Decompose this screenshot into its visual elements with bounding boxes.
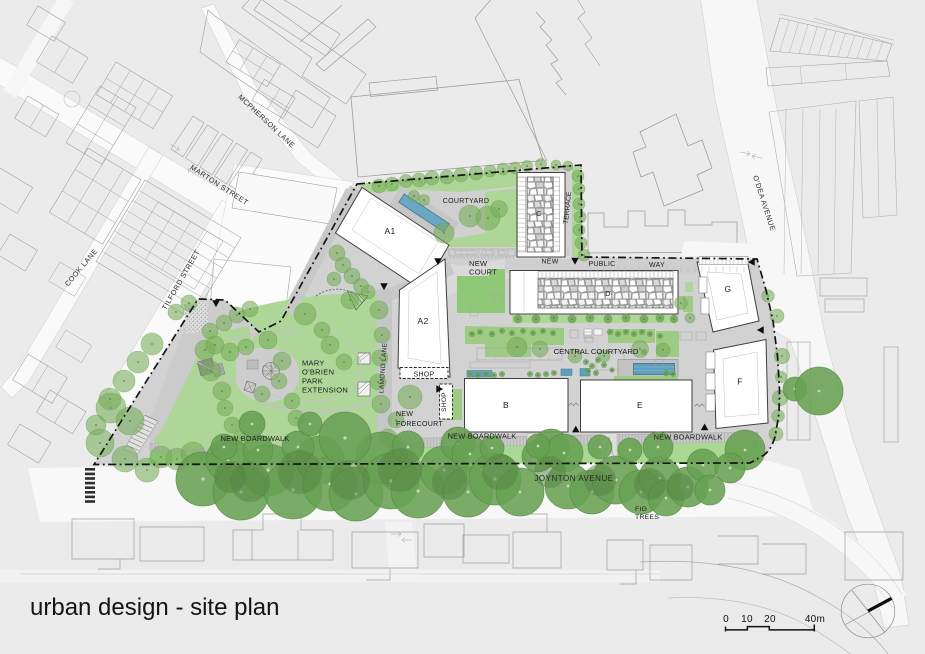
svg-text:FIG: FIG [635,506,647,513]
svg-text:EXTENSION: EXTENSION [302,385,348,394]
svg-text:C: C [536,209,542,218]
svg-text:WAY: WAY [649,262,665,269]
svg-text:E: E [637,400,643,410]
svg-text:A2: A2 [418,316,429,326]
svg-text:F: F [737,377,743,387]
svg-text:PUBLIC: PUBLIC [588,261,615,268]
svg-text:PARK: PARK [302,377,323,386]
svg-text:NEW BOARDWALK: NEW BOARDWALK [654,433,723,442]
svg-text:A1: A1 [385,226,396,236]
svg-text:JOYNTON AVENUE: JOYNTON AVENUE [534,474,613,483]
svg-text:NEW: NEW [396,411,413,418]
svg-text:NEW BOARDWALK: NEW BOARDWALK [448,432,517,441]
svg-text:40m: 40m [805,614,825,625]
svg-text:20: 20 [764,614,776,625]
svg-text:D: D [605,289,611,298]
svg-text:O'BRIEN: O'BRIEN [302,368,334,377]
svg-text:COURTYARD: COURTYARD [443,198,489,205]
svg-text:TREES: TREES [635,514,659,521]
svg-text:urban design - site plan: urban design - site plan [30,594,280,621]
svg-text:B: B [503,400,509,410]
svg-text:NEW BOARDWALK: NEW BOARDWALK [221,434,290,443]
svg-text:NEW: NEW [541,259,558,266]
svg-text:10: 10 [741,614,753,625]
svg-text:CENTRAL COURTYARD: CENTRAL COURTYARD [554,347,639,356]
svg-text:MARY: MARY [302,359,325,368]
svg-text:SHOP: SHOP [441,392,448,412]
svg-text:0: 0 [723,614,729,625]
svg-text:G: G [725,284,732,294]
svg-text:SHOP: SHOP [413,372,434,379]
svg-text:FORECOURT: FORECOURT [396,421,443,428]
svg-text:COURT: COURT [469,268,497,277]
